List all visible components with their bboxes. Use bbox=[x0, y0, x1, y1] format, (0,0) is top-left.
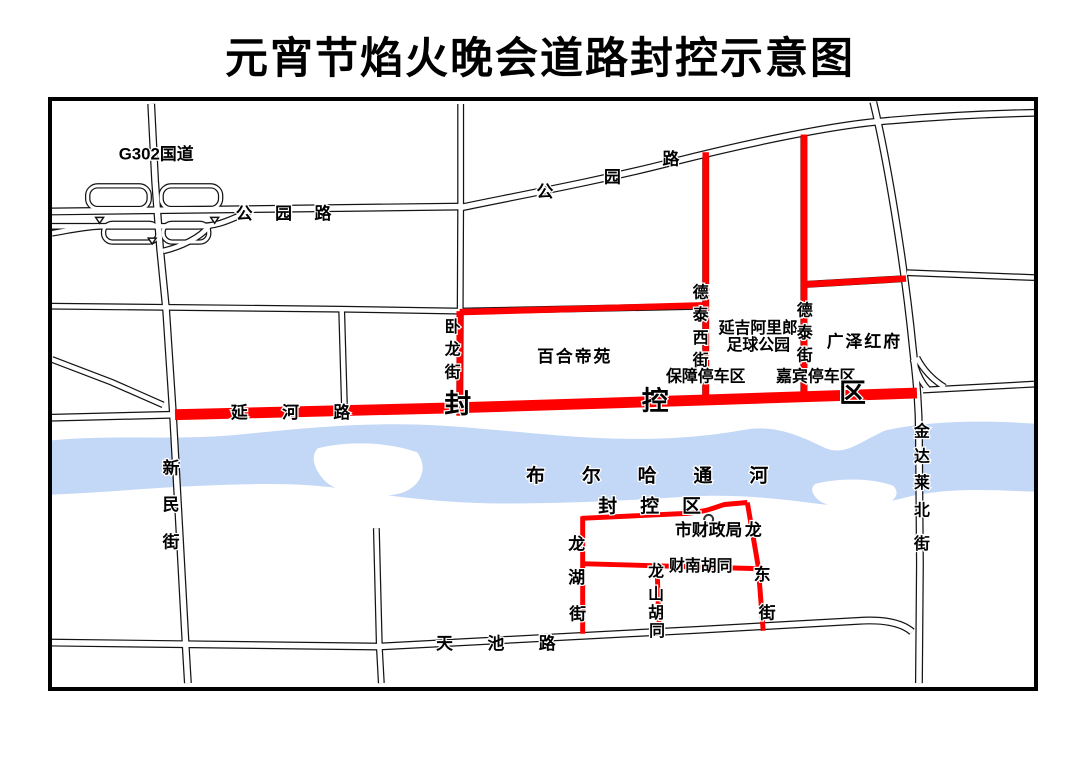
label-yanhe-road: 延 河 路 bbox=[230, 402, 365, 422]
label-tianchi-road: 天 池 路 bbox=[436, 633, 570, 653]
label-longhu-char: 龙 bbox=[567, 533, 585, 553]
label-park-road-west: 公 园 路 bbox=[236, 203, 341, 223]
label-longhu-char: 街 bbox=[568, 603, 586, 623]
label-detaixi-char: 街 bbox=[692, 351, 709, 370]
river-island-east bbox=[812, 480, 896, 509]
label-guangze-estate: 广泽红府 bbox=[827, 331, 902, 351]
road-closure-map: G302国道 公 园 路 公 园 路 卧 龙 街 百合帝苑 德 泰 西 街 延吉… bbox=[52, 101, 1034, 687]
label-park-road-diag-char: 公 bbox=[537, 182, 554, 201]
label-yanji-park-line1: 延吉阿里郎 bbox=[718, 318, 798, 337]
label-detai-char: 街 bbox=[796, 346, 813, 365]
interchange-loop-nw bbox=[88, 186, 149, 209]
label-longshan-char: 山 bbox=[648, 585, 664, 603]
interchange-arrow bbox=[96, 217, 104, 223]
label-wolong-char: 街 bbox=[444, 362, 461, 381]
label-park-road-diag-char: 路 bbox=[663, 149, 680, 169]
river-island-west bbox=[314, 443, 423, 496]
label-longshan-char: 同 bbox=[649, 622, 665, 640]
label-g302-highway: G302国道 bbox=[119, 144, 194, 164]
label-cainan-alley: 财南胡同 bbox=[669, 556, 732, 575]
label-longshan-char: 胡 bbox=[648, 603, 664, 622]
label-longdong-char: 街 bbox=[758, 602, 776, 622]
label-longdong-char: 东 bbox=[754, 564, 771, 584]
label-longhu-char: 湖 bbox=[568, 568, 585, 587]
label-baihe-estate: 百合帝苑 bbox=[537, 346, 612, 366]
label-closure-zone-char: 封 bbox=[444, 389, 471, 419]
map-canvas: G302国道 公 园 路 公 园 路 卧 龙 街 百合帝苑 德 泰 西 街 延吉… bbox=[48, 97, 1038, 691]
label-xinmin-char: 街 bbox=[162, 531, 180, 551]
label-jindalai-char: 金 bbox=[913, 422, 930, 441]
interchange-loop-ne bbox=[161, 186, 221, 209]
label-detai-char: 泰 bbox=[796, 323, 813, 342]
label-park-road-diag-char: 园 bbox=[604, 167, 621, 186]
label-closure-zone-south: 封 控 区 bbox=[598, 494, 710, 516]
label-wolong-char: 卧 bbox=[445, 318, 461, 336]
label-closure-zone-char: 区 bbox=[839, 378, 866, 408]
label-longshan-char: 龙 bbox=[647, 562, 664, 581]
label-xinmin-char: 民 bbox=[163, 495, 180, 514]
label-river-name: 布 尔 哈 通 河 bbox=[526, 464, 784, 486]
label-jindalai-char: 达 bbox=[914, 446, 930, 465]
label-closure-zone-char: 控 bbox=[642, 386, 669, 416]
closure-north-horizontal bbox=[460, 305, 706, 312]
label-longdong-char: 龙 bbox=[744, 520, 762, 540]
label-yanji-park-line2: 足球公园 bbox=[727, 335, 790, 354]
label-detai-char: 德 bbox=[797, 300, 813, 319]
label-support-parking: 保障停车区 bbox=[665, 366, 745, 385]
label-detaixi-char: 西 bbox=[693, 329, 709, 347]
page-title: 元宵节焰火晚会道路封控示意图 bbox=[0, 24, 1080, 86]
label-jindalai-char: 莱 bbox=[914, 474, 930, 492]
label-jindalai-char: 街 bbox=[913, 534, 930, 553]
label-wolong-char: 龙 bbox=[444, 340, 461, 359]
label-jindalai-char: 北 bbox=[914, 502, 930, 520]
label-detaixi-char: 泰 bbox=[692, 305, 709, 324]
label-finance-bureau: 市财政局 bbox=[675, 520, 742, 540]
label-detaixi-char: 德 bbox=[693, 283, 709, 302]
label-xinmin-char: 新 bbox=[163, 457, 180, 477]
closure-detai-link bbox=[804, 279, 906, 285]
